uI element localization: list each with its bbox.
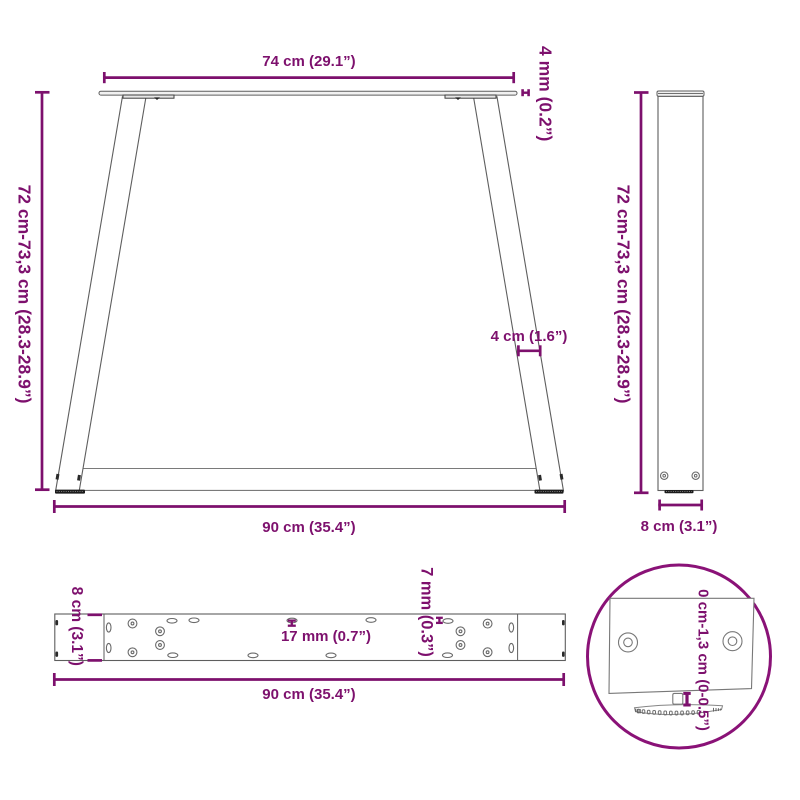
svg-text:74 cm (29.1”): 74 cm (29.1”) [262,53,355,70]
svg-text:90 cm (35.4”): 90 cm (35.4”) [262,686,355,703]
svg-text:7 mm (0.3”): 7 mm (0.3”) [418,567,436,657]
svg-text:8 cm (3.1”): 8 cm (3.1”) [68,587,85,666]
svg-text:72 cm-73,3 cm (28.3-28.9”): 72 cm-73,3 cm (28.3-28.9”) [614,185,634,404]
svg-text:8 cm (3.1”): 8 cm (3.1”) [641,518,718,535]
svg-text:4 mm (0.2”): 4 mm (0.2”) [536,46,556,141]
svg-text:90 cm (35.4”): 90 cm (35.4”) [262,519,355,536]
svg-text:4 cm (1.6”): 4 cm (1.6”) [491,328,568,345]
svg-text:17 mm (0.7”): 17 mm (0.7”) [281,628,371,645]
svg-text:0 cm-1,3 cm (0-0.5”): 0 cm-1,3 cm (0-0.5”) [694,589,711,731]
svg-text:72 cm-73,3 cm (28.3-28.9”): 72 cm-73,3 cm (28.3-28.9”) [15,185,35,404]
